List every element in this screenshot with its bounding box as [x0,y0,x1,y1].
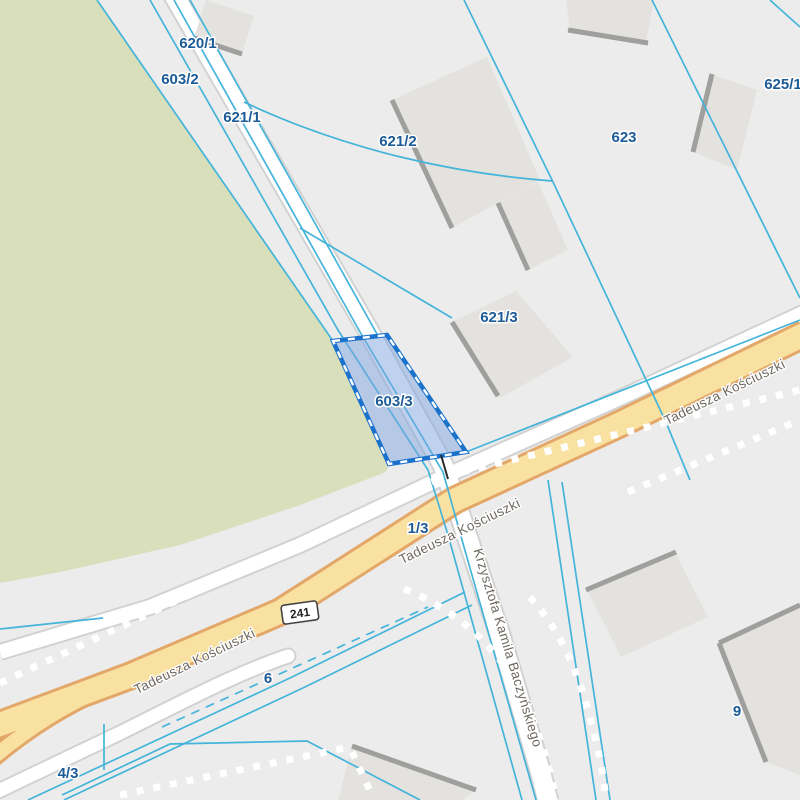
parcel-label-623: 623 [611,129,636,146]
parcel-label-620/1: 620/1 [179,35,217,52]
parcel-label-621/1: 621/1 [223,109,261,126]
route-shield-text: 241 [289,605,311,622]
route-shield-241: 241 [281,601,319,625]
parcel-label-9: 9 [733,703,741,720]
map-canvas[interactable]: Tadeusza KościuszkiTadeusza KościuszkiTa… [0,0,800,800]
parcel-label-4/3: 4/3 [58,765,79,782]
parcel-label-603/3: 603/3 [375,393,413,410]
parcel-label-625/1: 625/1 [764,76,800,93]
map-viewport[interactable]: Tadeusza KościuszkiTadeusza KościuszkiTa… [0,0,800,800]
parcel-label-1/3: 1/3 [408,520,429,537]
parcel-label-6: 6 [264,670,272,687]
parcel-label-603/2: 603/2 [161,71,199,88]
parcel-label-621/3: 621/3 [480,309,518,326]
parcel-label-621/2: 621/2 [379,133,417,150]
